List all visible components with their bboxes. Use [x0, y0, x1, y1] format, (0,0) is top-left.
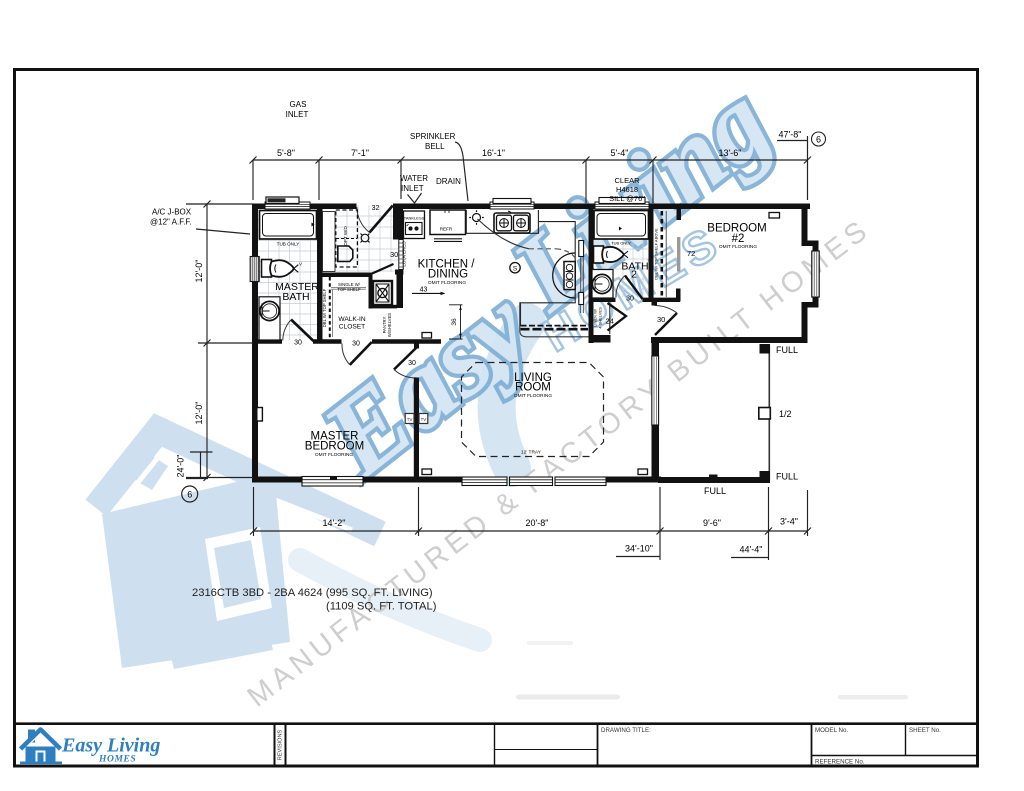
svg-text:OMIT FLOORING: OMIT FLOORING	[719, 244, 758, 250]
svg-text:7'-1": 7'-1"	[351, 148, 369, 158]
svg-text:DRAIN: DRAIN	[436, 177, 461, 186]
svg-text:BATH: BATH	[282, 291, 309, 303]
svg-text:OPT W/D: OPT W/D	[343, 226, 348, 246]
svg-text:43: 43	[420, 287, 428, 294]
svg-text:30: 30	[352, 341, 360, 348]
svg-text:OMIT FLOORING: OMIT FLOORING	[315, 452, 354, 458]
svg-text:(1109 SQ. FT. TOTAL): (1109 SQ. FT. TOTAL)	[326, 601, 437, 613]
svg-text:S: S	[513, 266, 518, 273]
svg-text:HOMES: HOMES	[98, 755, 136, 765]
svg-text:32: 32	[372, 205, 380, 212]
svg-text:H4618: H4618	[616, 185, 638, 194]
svg-text:12'-0": 12'-0"	[194, 402, 204, 425]
svg-text:A/C J-BOX: A/C J-BOX	[152, 208, 192, 217]
svg-text:CLOSET: CLOSET	[339, 324, 365, 331]
svg-text:5'-8": 5'-8"	[277, 148, 295, 158]
svg-text:36: 36	[451, 318, 458, 326]
svg-text:FULL: FULL	[776, 472, 798, 482]
svg-text:12'-0": 12'-0"	[194, 260, 204, 283]
svg-text:CLEAR: CLEAR	[614, 176, 640, 185]
svg-text:14'-2": 14'-2"	[323, 518, 346, 528]
svg-text:OMIT FLOORING: OMIT FLOORING	[428, 280, 467, 286]
svg-text:6: 6	[816, 135, 821, 145]
svg-text:ROOM: ROOM	[515, 382, 551, 394]
svg-text:34'-10": 34'-10"	[625, 544, 653, 554]
svg-text:TV: TV	[421, 417, 427, 422]
svg-text:24: 24	[606, 317, 614, 326]
svg-text:1/2: 1/2	[779, 409, 792, 419]
svg-text:20'-8": 20'-8"	[526, 518, 549, 528]
svg-text:BELL: BELL	[425, 142, 445, 151]
svg-text:#2: #2	[732, 233, 745, 245]
svg-text:3'-4": 3'-4"	[780, 517, 798, 527]
svg-text:2: 2	[631, 269, 637, 281]
svg-text:SPRINKLER: SPRINKLER	[410, 132, 456, 141]
svg-text:44'-4": 44'-4"	[740, 545, 763, 555]
svg-text:16'-1": 16'-1"	[482, 148, 505, 158]
svg-text:30: 30	[408, 360, 416, 367]
svg-text:TV: TV	[407, 417, 413, 422]
svg-text:2316CTB 3BD - 2BA 4624 (995: 2316CTB 3BD - 2BA 4624 (995 SQ. FT. LIVI…	[192, 587, 433, 599]
svg-text:V: V	[299, 262, 302, 267]
svg-text:13'-6": 13'-6"	[719, 148, 742, 158]
svg-text:GAS: GAS	[290, 100, 307, 109]
svg-text:LOUVERED: LOUVERED	[402, 241, 407, 267]
svg-text:REFR: REFR	[440, 227, 453, 232]
svg-text:SHEET No.: SHEET No.	[909, 727, 941, 734]
svg-text:INLET: INLET	[286, 110, 309, 119]
svg-text:DBL W/ TOP SHELF: DBL W/ TOP SHELF	[322, 288, 327, 327]
svg-text:FULL: FULL	[776, 345, 798, 355]
svg-text:BEDROOM: BEDROOM	[305, 441, 364, 453]
svg-text:TUB ONLY: TUB ONLY	[277, 242, 300, 247]
svg-text:@12" A.F.F.: @12" A.F.F.	[150, 218, 192, 227]
svg-text:Easy Living: Easy Living	[61, 735, 160, 757]
svg-text:TUB ONLY: TUB ONLY	[611, 241, 631, 246]
svg-text:DRAWING TITLE:: DRAWING TITLE:	[601, 727, 651, 734]
svg-text:47'-8": 47'-8"	[779, 130, 802, 140]
svg-text:REFERENCE No.: REFERENCE No.	[815, 759, 865, 766]
svg-text:W/SHELVES: W/SHELVES	[387, 313, 392, 337]
svg-text:9'-6": 9'-6"	[703, 518, 721, 528]
svg-text:MODEL No.: MODEL No.	[815, 727, 848, 734]
svg-text:30: 30	[626, 296, 634, 303]
svg-text:TOP SHELF: TOP SHELF	[337, 287, 361, 292]
svg-text:5'-4": 5'-4"	[611, 148, 629, 158]
svg-text:INLET: INLET	[401, 184, 424, 193]
svg-text:12' TRAY: 12' TRAY	[521, 450, 542, 456]
svg-text:6: 6	[187, 490, 192, 500]
svg-text:SILL @76": SILL @76"	[609, 194, 645, 203]
svg-text:30: 30	[390, 250, 398, 259]
svg-text:72: 72	[687, 249, 695, 258]
svg-text:DINING: DINING	[428, 269, 468, 281]
svg-text:WATER: WATER	[400, 174, 428, 183]
svg-text:4 SHELVES: 4 SHELVES	[598, 307, 603, 329]
svg-text:30: 30	[657, 315, 665, 324]
svg-text:REVISIONS: REVISIONS	[278, 730, 284, 761]
svg-text:DBL W/ TOP SHELF ABOVE: DBL W/ TOP SHELF ABOVE	[654, 228, 659, 280]
svg-text:FULL: FULL	[704, 486, 726, 496]
svg-text:WALK-IN: WALK-IN	[338, 316, 365, 323]
svg-text:OMIT FLOORING: OMIT FLOORING	[514, 393, 553, 399]
svg-text:24'-0": 24'-0"	[176, 455, 186, 478]
svg-text:TANKLESS: TANKLESS	[404, 216, 425, 221]
svg-text:30: 30	[294, 340, 302, 347]
